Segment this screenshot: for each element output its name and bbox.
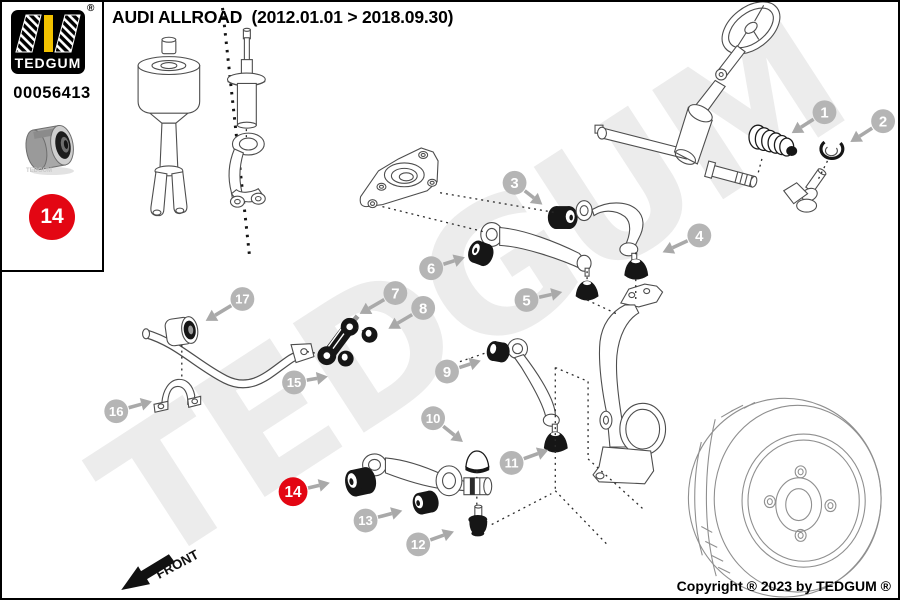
callout-number: 15	[287, 375, 302, 390]
part-badge: 14	[29, 194, 75, 240]
photo-watermark-text: TEDGUM	[26, 168, 52, 174]
catalog-page: TEDGUM	[0, 0, 900, 600]
ball-joint-boot-10-drawing	[466, 451, 489, 473]
tedgum-logo-mark-icon	[11, 10, 85, 56]
callout-number: 12	[411, 537, 426, 552]
callout-number: 6	[427, 262, 435, 278]
logo-yellow-bar	[44, 15, 53, 52]
callout-number: 3	[510, 176, 518, 192]
registered-trademark-symbol: ®	[87, 3, 94, 14]
part-number: 00056413	[2, 84, 102, 103]
callout-arrow	[378, 513, 392, 517]
callout-13: 13	[354, 507, 403, 532]
callout-number: 2	[879, 115, 887, 131]
callout-number: 13	[358, 513, 373, 528]
callout-number: 16	[109, 404, 124, 419]
ball-joint-boot-11-drawing	[544, 432, 567, 452]
wheel-drawing	[688, 398, 881, 597]
copyright-text: Copyright ® 2023 by TEDGUM ®	[677, 578, 891, 594]
callout-number: 11	[505, 456, 519, 471]
callout-number: 10	[426, 411, 441, 426]
callout-number: 5	[522, 293, 530, 309]
callout-arrowhead-icon	[390, 507, 402, 519]
callout-number: 4	[695, 229, 704, 245]
callout-number: 14	[284, 484, 302, 501]
bushing-3-drawing	[548, 207, 577, 229]
air-spring-strut-drawing	[138, 37, 200, 215]
callout-12: 12	[406, 529, 454, 556]
ball-joint-12-drawing	[469, 505, 487, 536]
bushing-13-drawing	[411, 490, 440, 516]
callout-arrow	[524, 454, 538, 459]
callout-number: 7	[391, 286, 399, 302]
callout-number: 8	[419, 301, 427, 317]
callout-number: 1	[820, 106, 828, 122]
part-info-sidebar: TEDGUM ® 00056413 TEDGUM 14	[2, 2, 104, 272]
page-title: AUDI ALLROAD (2012.01.01 > 2018.09.30)	[112, 7, 453, 28]
diagram-svg: TEDGUM	[2, 2, 898, 598]
sway-bar-bushing-17-drawing	[164, 316, 199, 347]
callout-arrow	[430, 535, 443, 540]
logo-brand-text: TEDGUM	[11, 55, 85, 71]
tedgum-logo: TEDGUM	[11, 10, 85, 74]
ring-seal-part-drawing	[821, 142, 843, 158]
callout-number: 9	[443, 365, 451, 381]
part-photo-bushing: TEDGUM	[22, 116, 82, 178]
callout-arrow	[307, 378, 317, 380]
callout-number: 17	[235, 292, 250, 307]
callout-arrow	[215, 306, 231, 316]
callout-11: 11	[500, 448, 549, 475]
